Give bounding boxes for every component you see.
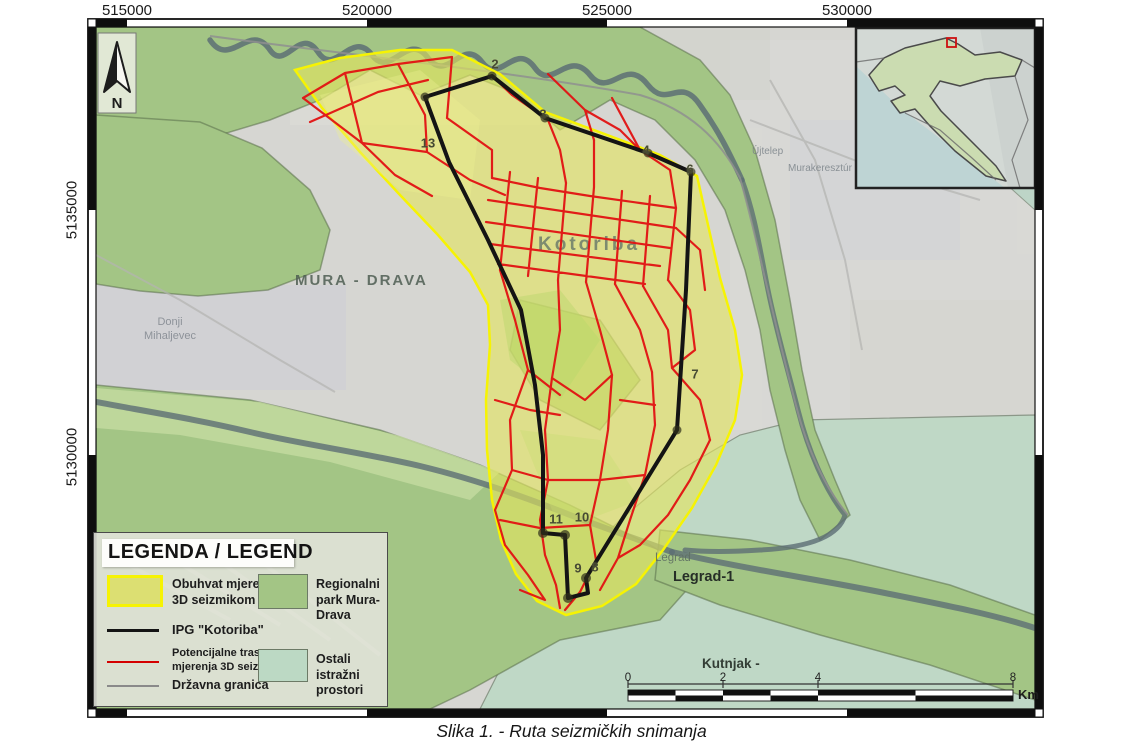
legend-title: LEGENDA / LEGEND: [108, 541, 313, 564]
waypoint-label: 8: [591, 560, 598, 575]
block-label-kutnjak: Kutnjak -: [702, 656, 760, 671]
place-label-legrad: Legrad: [655, 552, 691, 564]
place-label-donji-mihaljevec: Donji Mihaljevec: [138, 315, 202, 344]
north-label: N: [112, 95, 123, 112]
waypoint-label: 2: [491, 57, 498, 72]
scale-tick-label: 0: [625, 672, 631, 684]
scale-tick-label: 4: [815, 672, 821, 684]
waypoint-label: 3: [539, 107, 546, 122]
legend: LEGENDA / LEGEND Obuhvat mjerenja 3D sei…: [93, 532, 388, 707]
legend-label: Regionalni park Mura-Drava: [316, 577, 386, 624]
x-tick-label: 515000: [102, 2, 152, 19]
legend-swatch-other-areas: [258, 649, 308, 682]
waypoint-label: 4: [642, 143, 649, 158]
waypoint-label: 6: [686, 162, 693, 177]
park-label-mura-drava: MURA - DRAVA: [295, 272, 428, 289]
legend-swatch-regional-park: [258, 574, 308, 609]
block-label-legrad-1: Legrad-1: [673, 569, 734, 585]
inset-map: [856, 28, 1035, 188]
scale-unit-label: Km: [1018, 687, 1039, 702]
x-tick-label: 520000: [342, 2, 392, 19]
y-tick-label: 5130000: [64, 428, 81, 486]
figure-page: Kotoriba: [0, 0, 1143, 747]
figure-caption: Slika 1. - Ruta seizmičkih snimanja: [0, 721, 1143, 742]
scale-tick-label: 2: [720, 672, 726, 684]
scale-tick-label: 8: [1010, 672, 1016, 684]
legend-line-state-border: [107, 685, 159, 687]
y-tick-label: 5135000: [64, 181, 81, 239]
waypoint-label: 10: [575, 510, 589, 525]
legend-label: Ostali istražni prostori: [316, 652, 386, 699]
legend-label: IPG "Kotoriba": [172, 622, 302, 638]
waypoint-label: 13: [421, 136, 435, 151]
legend-swatch-survey-area: [107, 575, 163, 607]
waypoint-label: 7: [691, 367, 698, 382]
waypoint-label: 11: [549, 512, 563, 527]
x-tick-label: 525000: [582, 2, 632, 19]
legend-line-ipg: [107, 629, 159, 632]
waypoint-label: 9: [574, 561, 581, 576]
place-label-murakeresztur: Murakeresztúr: [788, 163, 852, 174]
legend-line-routes: [107, 661, 159, 663]
place-label-ujtelep: Újtelep: [752, 146, 783, 157]
x-tick-label: 530000: [822, 2, 872, 19]
